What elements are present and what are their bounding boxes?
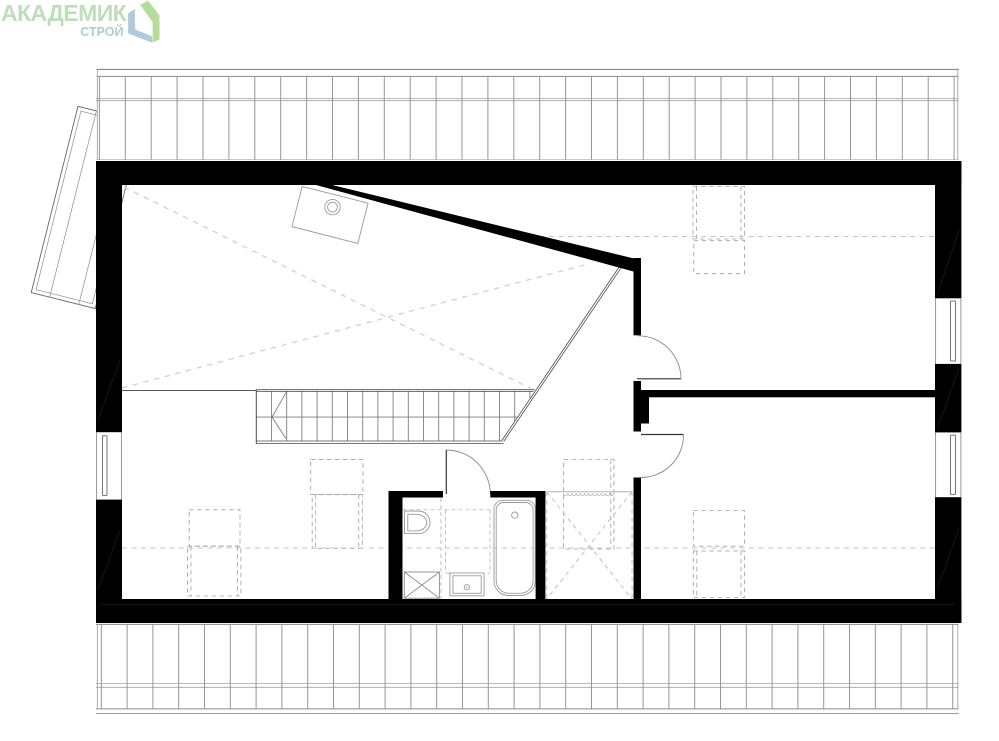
svg-text:СТРОЙ: СТРОЙ xyxy=(80,24,123,39)
svg-text:АКАДЕМИК: АКАДЕМИК xyxy=(1,0,128,26)
